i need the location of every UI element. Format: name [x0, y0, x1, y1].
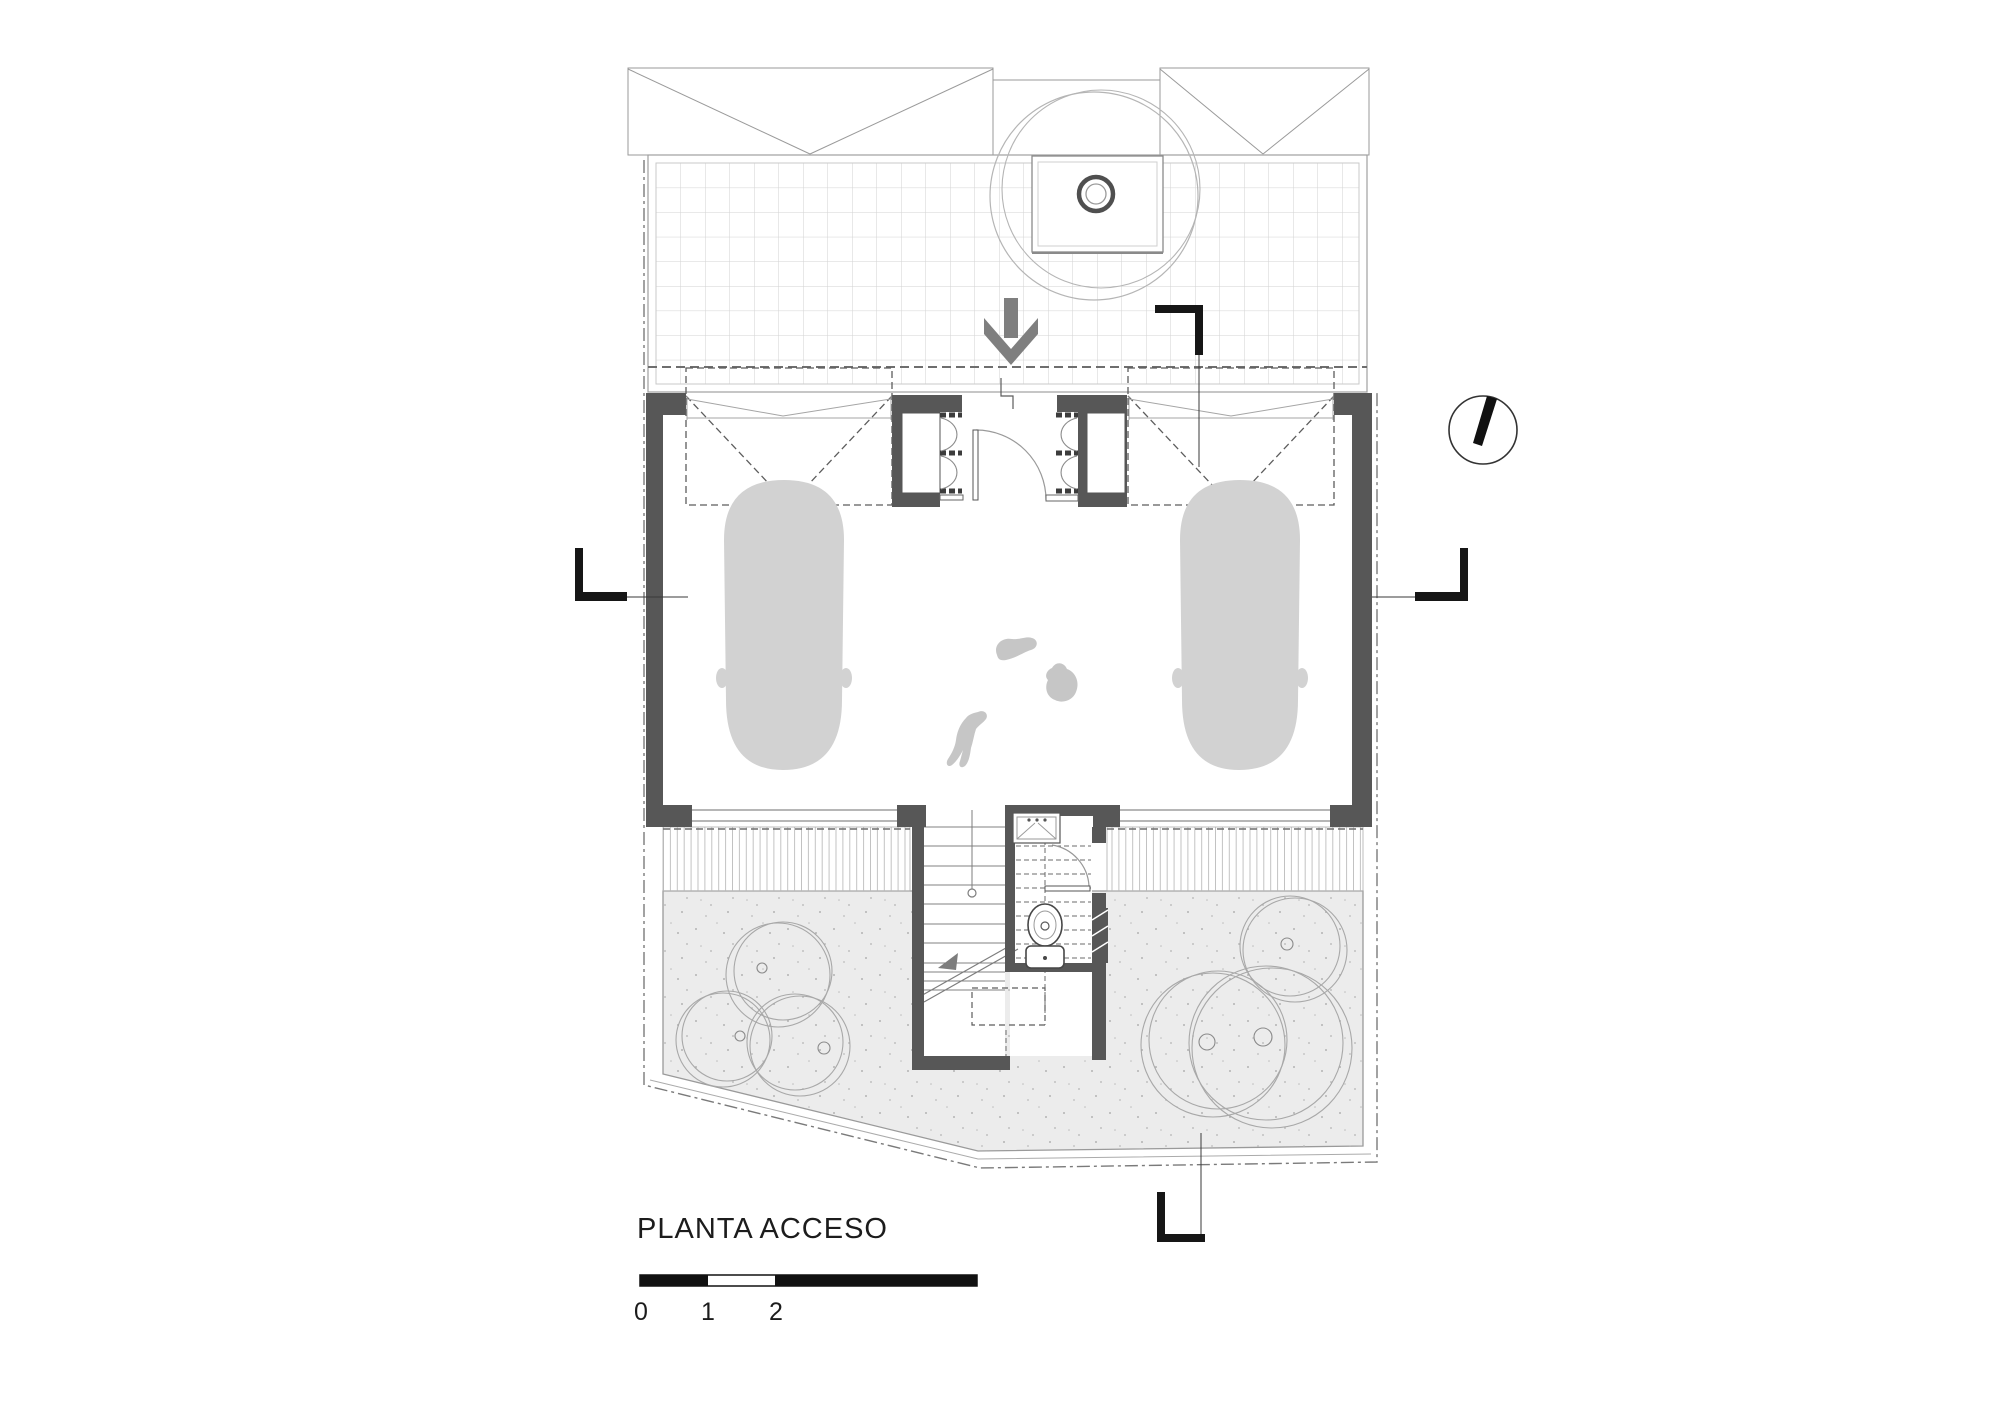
- hatched-wall-section: [1092, 908, 1108, 963]
- scale-label-1: 1: [701, 1298, 715, 1326]
- pet-lying: [996, 637, 1037, 660]
- floor-plan-canvas: PLANTA ACCESO 0 1 2: [0, 0, 2000, 1428]
- section-marker-bottom: [1157, 1133, 1205, 1242]
- wall-bottom-left: [646, 805, 692, 827]
- plan-title: PLANTA ACCESO: [637, 1213, 888, 1245]
- scale-bar: 0 1 2: [634, 1275, 977, 1326]
- wall-bottom-right: [1330, 805, 1372, 827]
- closet-left-interior: [902, 413, 940, 493]
- pet-standing: [947, 711, 987, 767]
- scale-label-2: 2: [769, 1298, 783, 1326]
- bathroom-sink: [1013, 813, 1060, 843]
- section-marker-right: [1372, 548, 1468, 601]
- pet-silhouettes: [947, 637, 1078, 767]
- north-arrow-icon: [1449, 396, 1517, 464]
- roof-panel-right: [1160, 68, 1369, 155]
- title-block: PLANTA ACCESO 0 1 2: [634, 1213, 977, 1326]
- closet-right-interior: [1087, 413, 1125, 493]
- scale-label-0: 0: [634, 1298, 648, 1326]
- closet-left-bifold-doors: [940, 415, 962, 491]
- stair-bath-core: [912, 805, 1120, 1070]
- section-marker-left: [575, 548, 688, 601]
- floor-plan-drawing: PLANTA ACCESO 0 1 2: [0, 0, 2000, 1428]
- wall-left: [646, 393, 663, 827]
- pet-sitting: [1046, 663, 1077, 701]
- roof-panel-middle: [993, 80, 1160, 155]
- roof-plan-strip: [628, 68, 1369, 155]
- wall-right: [1352, 393, 1372, 827]
- closet-right-bifold-doors: [1056, 415, 1078, 491]
- entry-vestibule: [892, 378, 1127, 507]
- roof-panel-left: [628, 68, 993, 155]
- car-right: [1172, 480, 1308, 770]
- car-left: [716, 480, 852, 770]
- toilet: [1026, 904, 1064, 968]
- deck-band-left: [663, 827, 910, 891]
- deck-band-right: [1107, 827, 1363, 891]
